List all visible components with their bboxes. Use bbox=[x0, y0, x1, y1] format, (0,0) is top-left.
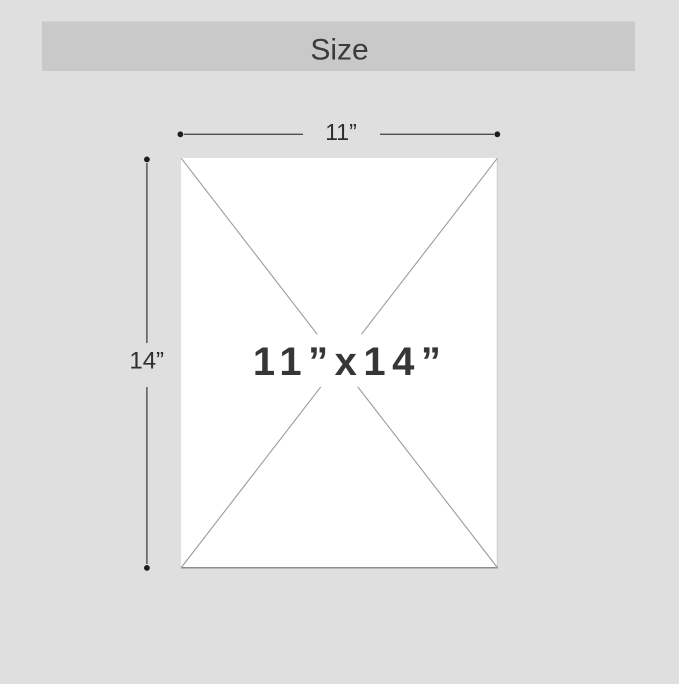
svg-text:11”x14”: 11”x14” bbox=[253, 340, 448, 384]
svg-text:Size: Size bbox=[310, 33, 368, 66]
svg-text:11”: 11” bbox=[325, 119, 357, 145]
svg-text:14”: 14” bbox=[129, 348, 164, 375]
